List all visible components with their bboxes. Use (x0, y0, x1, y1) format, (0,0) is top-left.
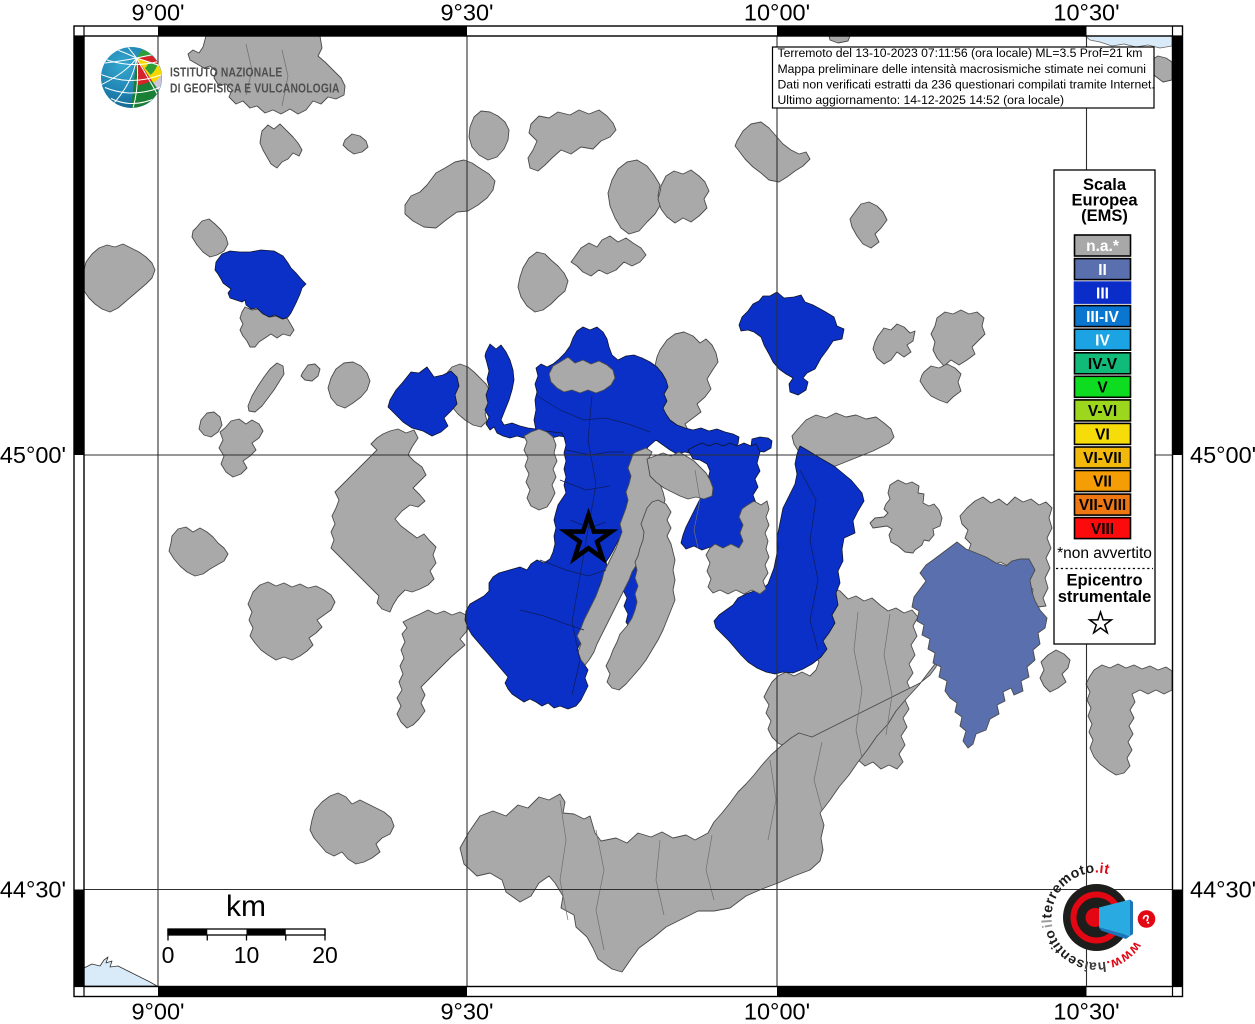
svg-text:20: 20 (312, 942, 338, 968)
svg-text:9°30': 9°30' (440, 0, 493, 26)
svg-text:45°00': 45°00' (0, 442, 66, 468)
svg-text:III: III (1096, 285, 1109, 302)
svg-text:9°00': 9°00' (131, 0, 184, 26)
svg-text:III-IV: III-IV (1086, 309, 1119, 326)
svg-text:IV: IV (1095, 332, 1110, 349)
svg-text:VI-VII: VI-VII (1083, 450, 1122, 467)
svg-text:VIII: VIII (1091, 521, 1114, 538)
svg-text:10°00': 10°00' (744, 0, 810, 26)
svg-text:n.a.*: n.a.* (1086, 238, 1120, 255)
svg-text:km: km (226, 890, 266, 923)
svg-text:45°00': 45°00' (1190, 442, 1255, 468)
svg-text:44°30': 44°30' (0, 877, 66, 903)
svg-text:Terremoto del 13-10-2023 07:11: Terremoto del 13-10-2023 07:11:56 (ora l… (778, 46, 1143, 60)
svg-text:Ultimo aggiornamento: 14-12-20: Ultimo aggiornamento: 14-12-2025 14:52 (… (778, 93, 1065, 107)
svg-text:DI GEOFISICA E VULCANOLOGIA: DI GEOFISICA E VULCANOLOGIA (170, 80, 340, 96)
svg-text:Epicentro: Epicentro (1066, 572, 1142, 590)
svg-text:Mappa preliminare delle intens: Mappa preliminare delle intensità macros… (778, 62, 1147, 76)
svg-text:ISTITUTO NAZIONALE: ISTITUTO NAZIONALE (170, 64, 282, 80)
svg-text:9°00': 9°00' (131, 999, 184, 1024)
svg-text:IV-V: IV-V (1088, 356, 1118, 373)
svg-text:strumentale: strumentale (1058, 588, 1152, 606)
svg-text:VII-VIII: VII-VIII (1079, 497, 1126, 514)
svg-text:10°30': 10°30' (1053, 999, 1119, 1024)
svg-text:VI: VI (1095, 427, 1110, 444)
svg-text:(EMS): (EMS) (1081, 207, 1128, 225)
svg-text:10: 10 (234, 942, 260, 968)
svg-text:VII: VII (1093, 474, 1112, 491)
svg-text:V-VI: V-VI (1088, 403, 1117, 420)
svg-text:II: II (1098, 262, 1107, 279)
svg-text:Dati non verificati estratti d: Dati non verificati estratti da 236 ques… (778, 77, 1155, 91)
svg-text:10°30': 10°30' (1053, 0, 1119, 26)
svg-text:0: 0 (162, 942, 175, 968)
svg-text:V: V (1097, 380, 1108, 397)
svg-text:44°30': 44°30' (1190, 877, 1255, 903)
svg-text:10°00': 10°00' (744, 999, 810, 1024)
svg-text:*non avvertito: *non avvertito (1057, 545, 1152, 562)
svg-text:9°30': 9°30' (440, 999, 493, 1024)
